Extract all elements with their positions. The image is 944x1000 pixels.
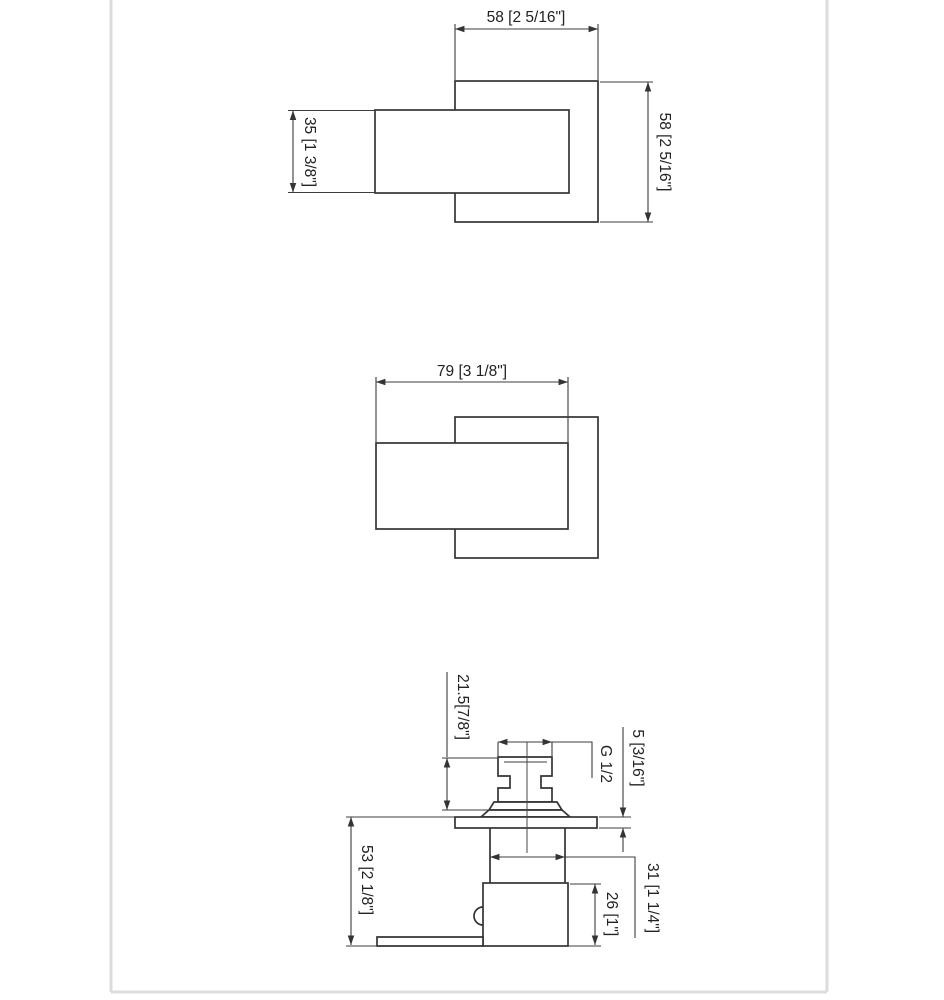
dim-label-body-depth: 26 [1"] [603, 892, 620, 936]
base-washer-upper [489, 802, 562, 810]
lever-outline [377, 937, 483, 946]
side-view: G 1/2 21.5[7/8"] 5 [3/16"] 31 [1 1/4"] 2… [346, 672, 661, 946]
leader-line-stem-width [565, 857, 635, 938]
set-screw-arc [474, 907, 483, 925]
plan-view: 79 [3 1/8"] [376, 363, 598, 558]
dim-label-overall-depth: 53 [2 1/8"] [358, 845, 375, 915]
dim-label-stem-width: 31 [1 1/4"] [644, 863, 661, 933]
dim-label-plate-height: 58 [2 5/16"] [656, 113, 673, 192]
technical-drawing-page: 58 [2 5/16"] 58 [2 5/16"] 35 [1 3/8"] 79… [0, 0, 944, 1000]
handle-body-outline [483, 883, 568, 946]
escutcheon-plate-edge [455, 817, 597, 828]
dim-label-handle-height: 35 [1 3/8"] [301, 117, 318, 187]
dim-label-thread-size: G 1/2 [597, 745, 614, 783]
leader-line-thread [552, 742, 592, 778]
valve-cartridge-outline [498, 757, 552, 802]
dim-label-plate-thickness: 5 [3/16"] [629, 729, 646, 786]
base-washer-lower [481, 810, 570, 817]
handle-outline [376, 443, 568, 529]
dim-label-plate-width: 58 [2 5/16"] [487, 9, 566, 26]
handle-outline [375, 110, 569, 193]
front-view: 58 [2 5/16"] 58 [2 5/16"] 35 [1 3/8"] [288, 9, 673, 222]
dim-label-cartridge-height: 21.5[7/8"] [454, 674, 471, 740]
dim-label-handle-length: 79 [3 1/8"] [437, 363, 507, 380]
faucet-trim-dimension-drawing: 58 [2 5/16"] 58 [2 5/16"] 35 [1 3/8"] 79… [0, 0, 944, 1000]
